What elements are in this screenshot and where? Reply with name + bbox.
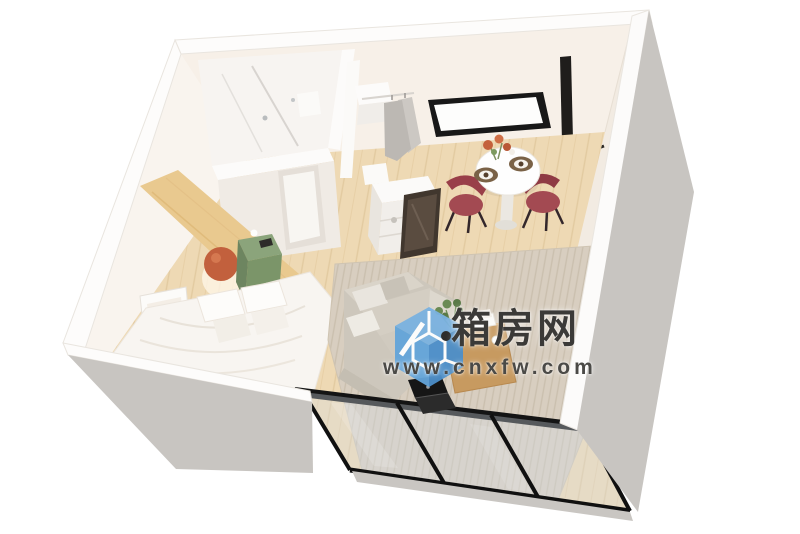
shower-fixture [263, 116, 268, 121]
watermark-dot [441, 331, 451, 341]
watermark-url: www.cnxfw.com [383, 357, 597, 378]
screenshot-root: 箱房网 www.cnxfw.com [0, 0, 800, 534]
door-frame [560, 56, 573, 142]
watermark-site-name: 箱房网 [451, 309, 580, 349]
room-3d-render [0, 0, 800, 534]
wall-lamp [204, 247, 238, 281]
leaning-mirror [400, 188, 441, 259]
